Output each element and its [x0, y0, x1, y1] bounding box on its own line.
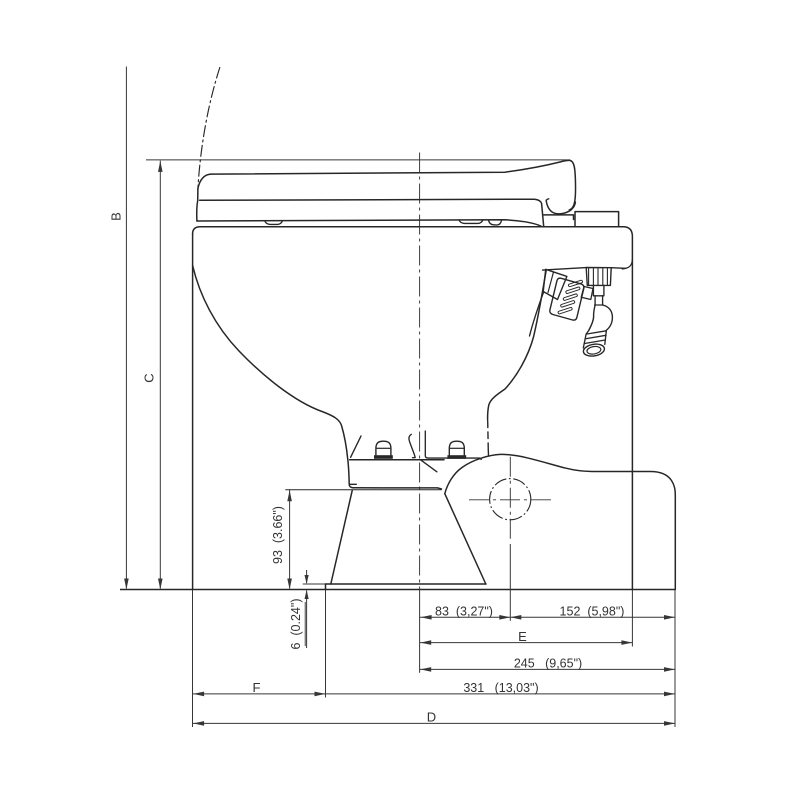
svg-text:D: D [427, 709, 436, 724]
svg-text:E: E [518, 629, 527, 644]
svg-text:C: C [142, 373, 157, 382]
svg-text:6 (0.24"): 6 (0.24") [289, 599, 303, 650]
svg-text:F: F [253, 680, 261, 695]
svg-text:152 (5,98"): 152 (5,98") [560, 605, 625, 619]
svg-text:93 (3.66"): 93 (3.66") [271, 506, 285, 564]
svg-text:B: B [109, 212, 124, 221]
svg-text:331 (13,03"): 331 (13,03") [463, 681, 538, 695]
svg-text:245 (9,65"): 245 (9,65") [514, 656, 582, 670]
svg-text:83 (3,27"): 83 (3,27") [435, 605, 493, 619]
